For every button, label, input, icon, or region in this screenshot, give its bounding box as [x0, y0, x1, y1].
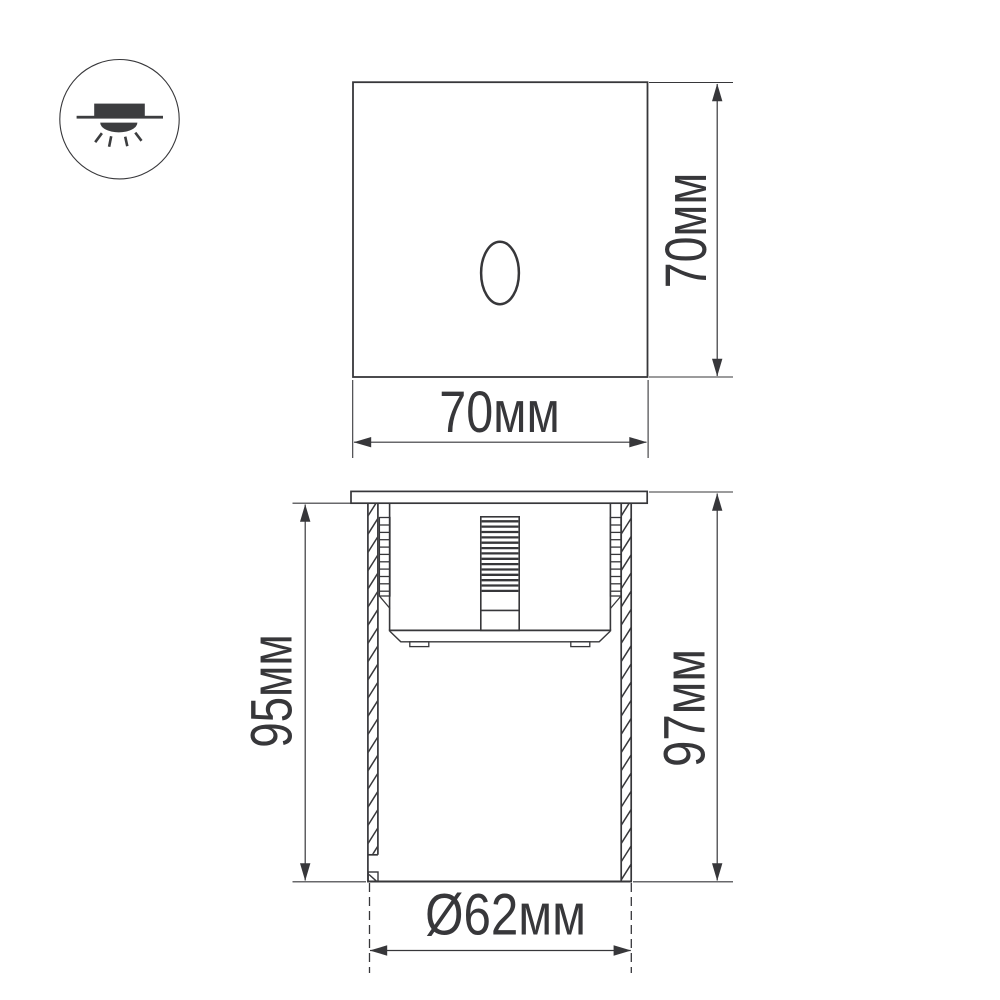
- svg-text:70мм: 70мм: [439, 380, 560, 445]
- svg-text:97мм: 97мм: [653, 649, 718, 767]
- svg-text:95мм: 95мм: [240, 634, 305, 748]
- svg-text:70мм: 70мм: [654, 173, 719, 289]
- svg-text:Ø62мм: Ø62мм: [425, 883, 586, 948]
